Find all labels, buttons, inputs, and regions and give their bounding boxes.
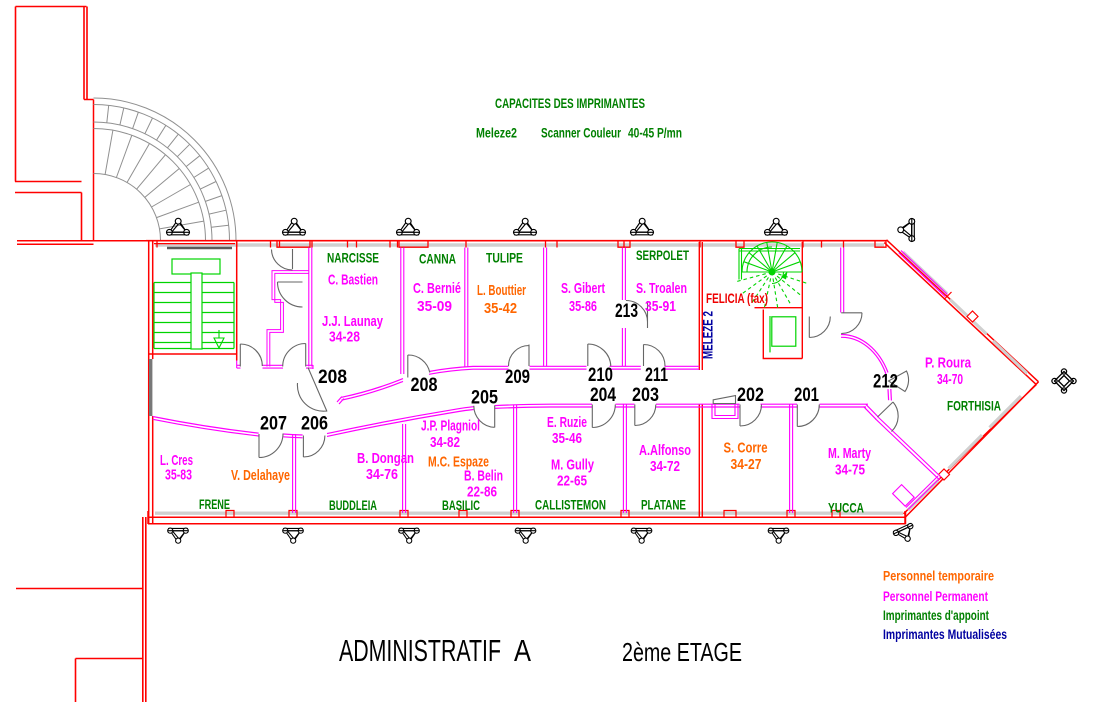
svg-text:FORTHISIA: FORTHISIA: [947, 399, 1001, 414]
svg-text:L. Bouttier: L. Bouttier: [477, 282, 526, 299]
svg-text:203: 203: [632, 384, 659, 406]
svg-text:Imprimantes Mutualisées: Imprimantes Mutualisées: [883, 627, 1007, 642]
svg-text:Imprimantes d'appoint: Imprimantes d'appoint: [883, 608, 989, 623]
svg-text:B. Dongan: B. Dongan: [357, 450, 414, 467]
svg-text:S. Gibert: S. Gibert: [561, 280, 605, 297]
svg-text:35-86: 35-86: [569, 298, 597, 315]
svg-text:NARCISSE: NARCISSE: [327, 251, 379, 266]
svg-text:Personnel Permanent: Personnel Permanent: [883, 589, 988, 604]
svg-text:S. Corre: S. Corre: [724, 440, 768, 457]
svg-text:CAPACITES DES IMPRIMANTES: CAPACITES DES IMPRIMANTES: [495, 95, 645, 111]
svg-text:SERPOLET: SERPOLET: [636, 248, 690, 263]
svg-text:35-91: 35-91: [645, 298, 676, 315]
svg-text:34-70: 34-70: [937, 371, 963, 388]
svg-text:211: 211: [645, 364, 668, 386]
svg-text:34-76: 34-76: [366, 466, 398, 483]
svg-text:202: 202: [737, 384, 764, 406]
svg-text:35-42: 35-42: [484, 300, 517, 317]
svg-text:34-27: 34-27: [731, 456, 762, 473]
svg-text:M. Marty: M. Marty: [828, 445, 871, 462]
svg-text:E. Ruzie: E. Ruzie: [547, 414, 587, 431]
svg-text:V. Delahaye: V. Delahaye: [231, 467, 290, 484]
svg-text:FRENE: FRENE: [199, 497, 230, 512]
svg-text:35-83: 35-83: [165, 467, 192, 484]
svg-text:22-86: 22-86: [467, 484, 497, 501]
svg-text:M. Gully: M. Gully: [551, 457, 594, 474]
svg-text:PLATANE: PLATANE: [641, 498, 686, 513]
svg-text:Scanner Couleur: Scanner Couleur: [541, 126, 622, 141]
svg-text:213: 213: [615, 300, 638, 322]
svg-text:A: A: [514, 633, 531, 668]
svg-text:J.P. Plagniol: J.P. Plagniol: [421, 418, 480, 435]
svg-text:35-09: 35-09: [417, 298, 452, 315]
svg-text:208: 208: [411, 374, 438, 396]
svg-text:CANNA: CANNA: [419, 252, 456, 267]
svg-text:M.C. Espaze: M.C. Espaze: [428, 454, 489, 471]
svg-text:34-28: 34-28: [329, 329, 360, 346]
svg-text:34-72: 34-72: [650, 458, 680, 475]
svg-text:35-46: 35-46: [552, 430, 582, 447]
svg-text:C. Bastien: C. Bastien: [328, 272, 378, 289]
svg-text:YUCCA: YUCCA: [828, 501, 864, 516]
svg-text:204: 204: [590, 384, 616, 406]
svg-text:A.Alfonso: A.Alfonso: [639, 442, 691, 459]
svg-text:207: 207: [260, 413, 287, 435]
svg-text:J.J. Launay: J.J. Launay: [322, 313, 383, 330]
svg-text:212: 212: [873, 371, 898, 393]
svg-text:34-75: 34-75: [835, 462, 865, 479]
svg-text:CALLISTEMON: CALLISTEMON: [535, 498, 606, 513]
svg-text:208: 208: [318, 366, 347, 388]
svg-text:34-82: 34-82: [430, 434, 460, 451]
svg-text:FELICIA (fax): FELICIA (fax): [706, 291, 768, 306]
svg-text:201: 201: [794, 384, 819, 406]
svg-text:205: 205: [471, 387, 498, 409]
svg-text:22-65: 22-65: [557, 473, 587, 490]
svg-text:BUDDLEIA: BUDDLEIA: [329, 498, 377, 513]
svg-text:2ème ETAGE: 2ème ETAGE: [622, 637, 742, 667]
svg-text:40-45 P/mn: 40-45 P/mn: [628, 126, 682, 141]
svg-text:210: 210: [588, 364, 613, 386]
svg-text:Personnel temporaire: Personnel temporaire: [883, 569, 994, 584]
svg-text:C. Bernié: C. Bernié: [413, 280, 461, 297]
svg-text:Meleze2: Meleze2: [476, 126, 517, 141]
svg-text:206: 206: [301, 413, 328, 435]
svg-text:ADMINISTRATIF: ADMINISTRATIF: [339, 633, 501, 668]
svg-text:S. Troalen: S. Troalen: [636, 280, 687, 297]
svg-text:MELEZE 2: MELEZE 2: [701, 311, 716, 359]
svg-text:209: 209: [505, 366, 530, 388]
svg-text:P. Roura: P. Roura: [925, 355, 972, 372]
svg-text:TULIPE: TULIPE: [486, 251, 523, 266]
